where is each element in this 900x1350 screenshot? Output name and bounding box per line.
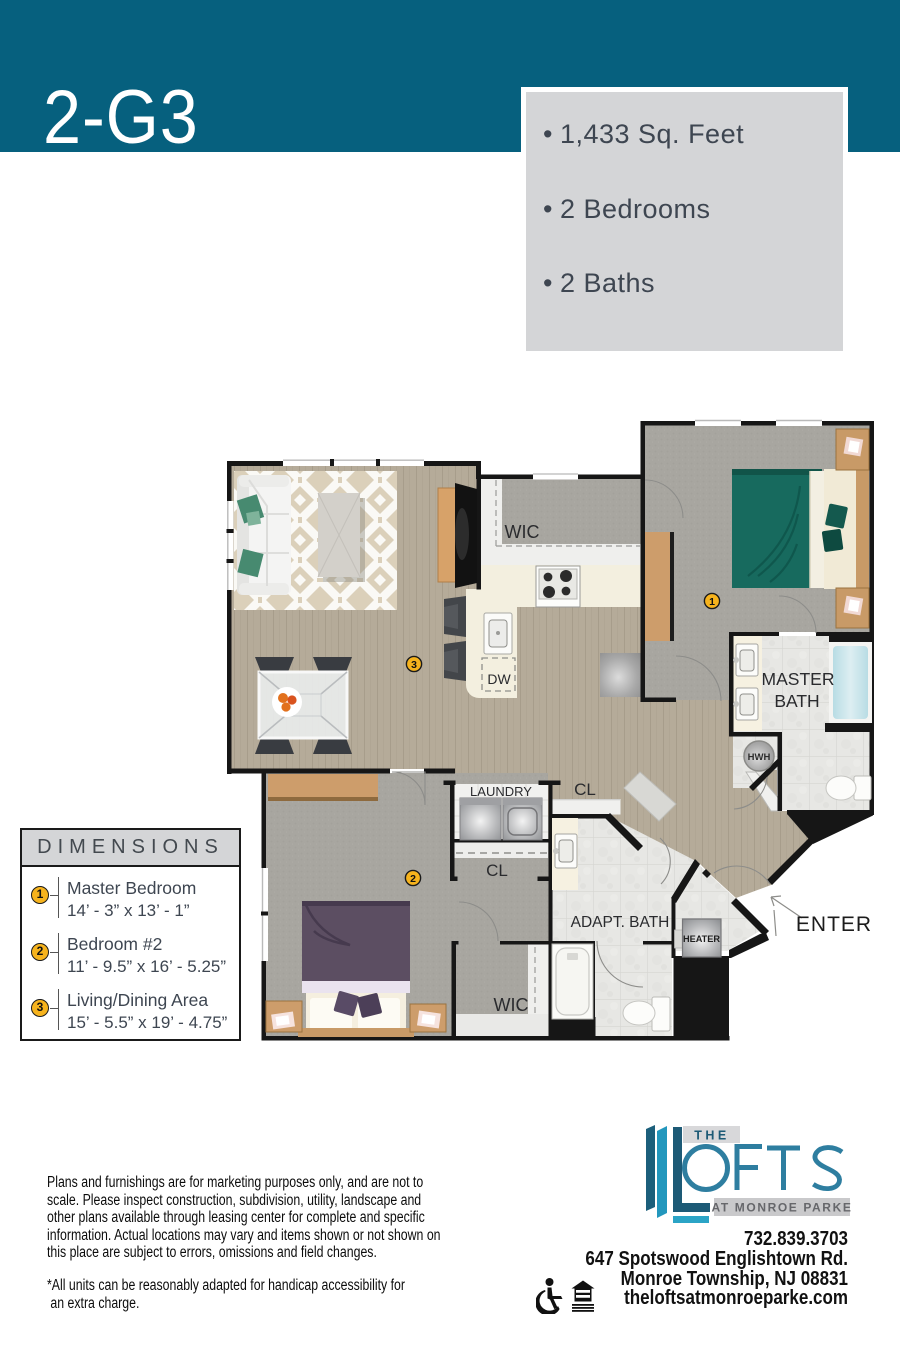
svg-text:MASTER: MASTER	[762, 669, 835, 689]
svg-text:BATH: BATH	[774, 691, 819, 711]
svg-text:WIC: WIC	[505, 522, 540, 542]
svg-text:THE: THE	[694, 1129, 730, 1143]
svg-text:WIC: WIC	[494, 995, 529, 1015]
svg-text:ENTER: ENTER	[796, 913, 872, 936]
svg-text:HWH: HWH	[748, 752, 771, 763]
svg-text:HEATER: HEATER	[683, 934, 720, 944]
svg-text:AT MONROE PARKE: AT MONROE PARKE	[712, 1201, 853, 1215]
svg-text:CL: CL	[486, 861, 508, 880]
svg-text:LAUNDRY: LAUNDRY	[470, 784, 532, 799]
svg-text:ADAPT. BATH: ADAPT. BATH	[571, 914, 670, 931]
svg-text:CL: CL	[574, 780, 596, 799]
svg-text:2: 2	[410, 873, 416, 885]
svg-text:3: 3	[411, 659, 417, 671]
svg-text:1: 1	[709, 596, 715, 608]
svg-text:DW: DW	[487, 671, 511, 687]
